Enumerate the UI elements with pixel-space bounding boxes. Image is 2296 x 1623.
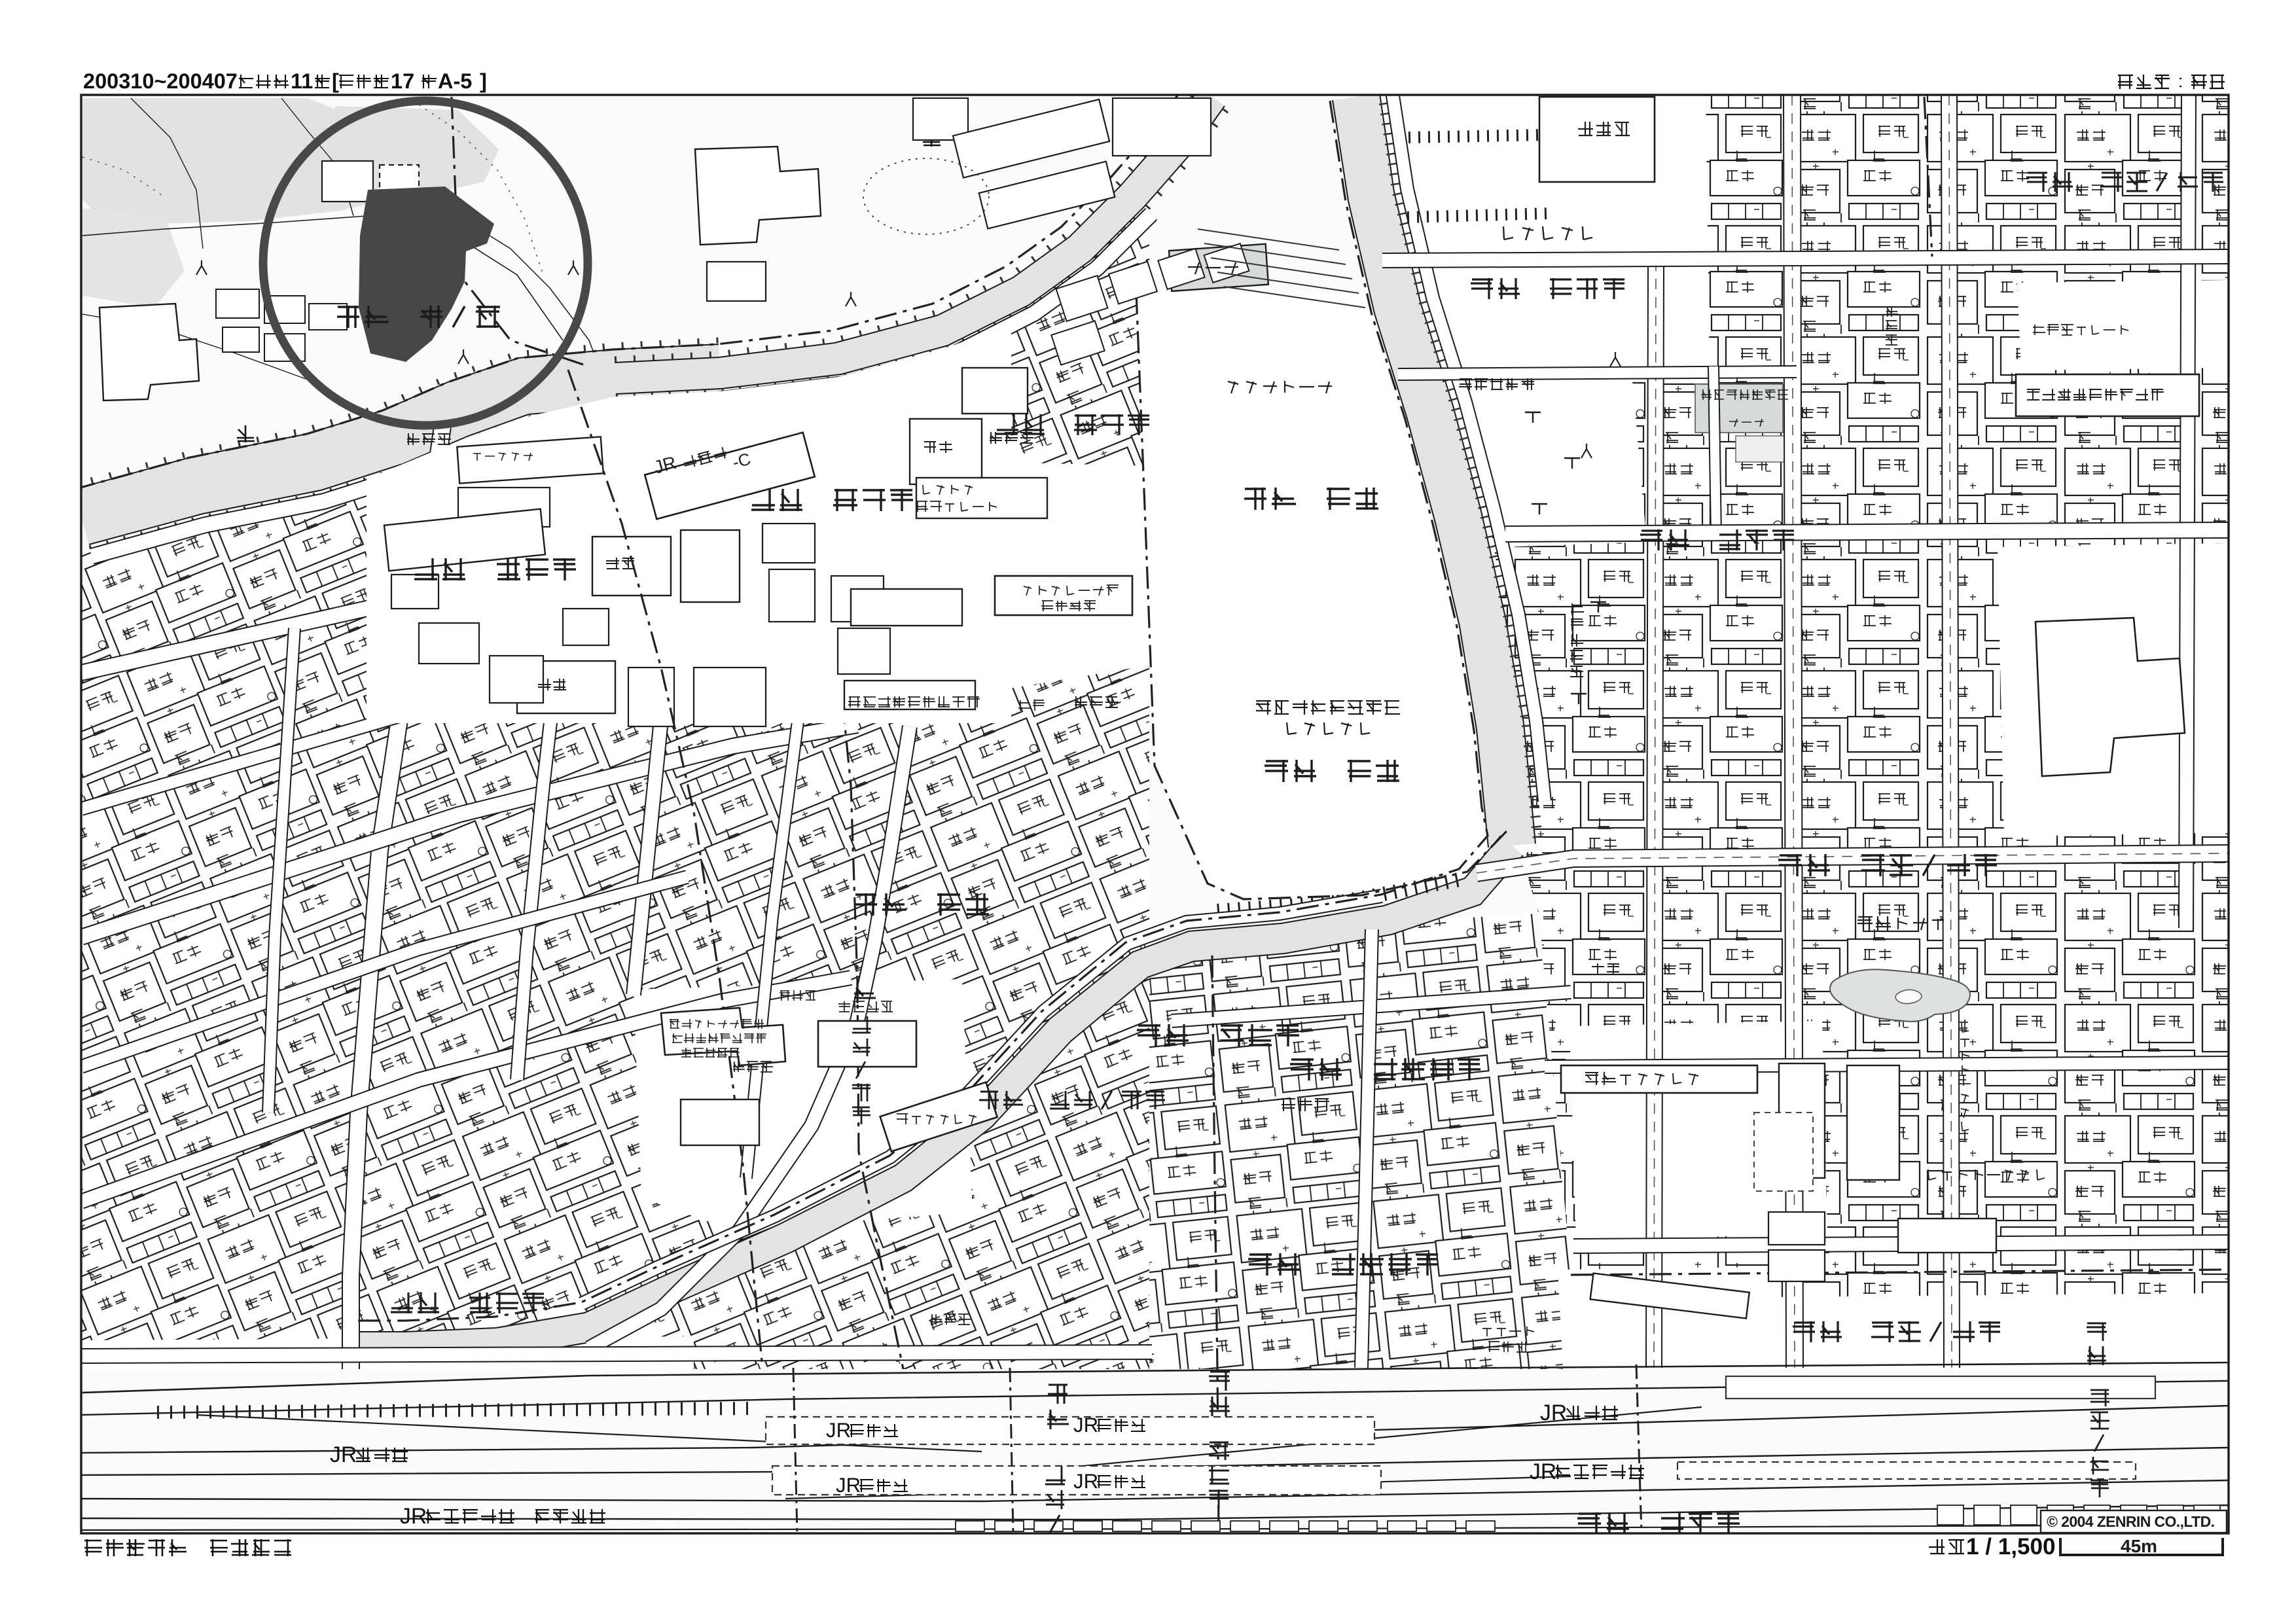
svg-text:JR: JR [1073, 1414, 1098, 1436]
svg-text:A-5: A-5 [438, 69, 472, 93]
svg-text:JR: JR [1073, 1470, 1098, 1493]
svg-text:JR: JR [826, 1419, 851, 1442]
svg-text:JR: JR [836, 1474, 861, 1497]
svg-text:]: ] [480, 69, 487, 93]
svg-text:[: [ [332, 69, 339, 93]
svg-text:45m: 45m [2121, 1536, 2157, 1556]
svg-text:JR: JR [330, 1442, 357, 1467]
svg-text:JR: JR [1540, 1400, 1567, 1425]
svg-text:JR: JR [1530, 1459, 1556, 1484]
svg-text:11: 11 [291, 69, 313, 93]
svg-text:© 2004 ZENRIN CO.,LTD.: © 2004 ZENRIN CO.,LTD. [2047, 1513, 2214, 1530]
svg-text:1 / 1,500: 1 / 1,500 [1966, 1534, 2056, 1560]
svg-text:JR: JR [400, 1504, 427, 1529]
svg-text:200310~200407: 200310~200407 [83, 69, 238, 93]
svg-text:17: 17 [391, 69, 414, 93]
